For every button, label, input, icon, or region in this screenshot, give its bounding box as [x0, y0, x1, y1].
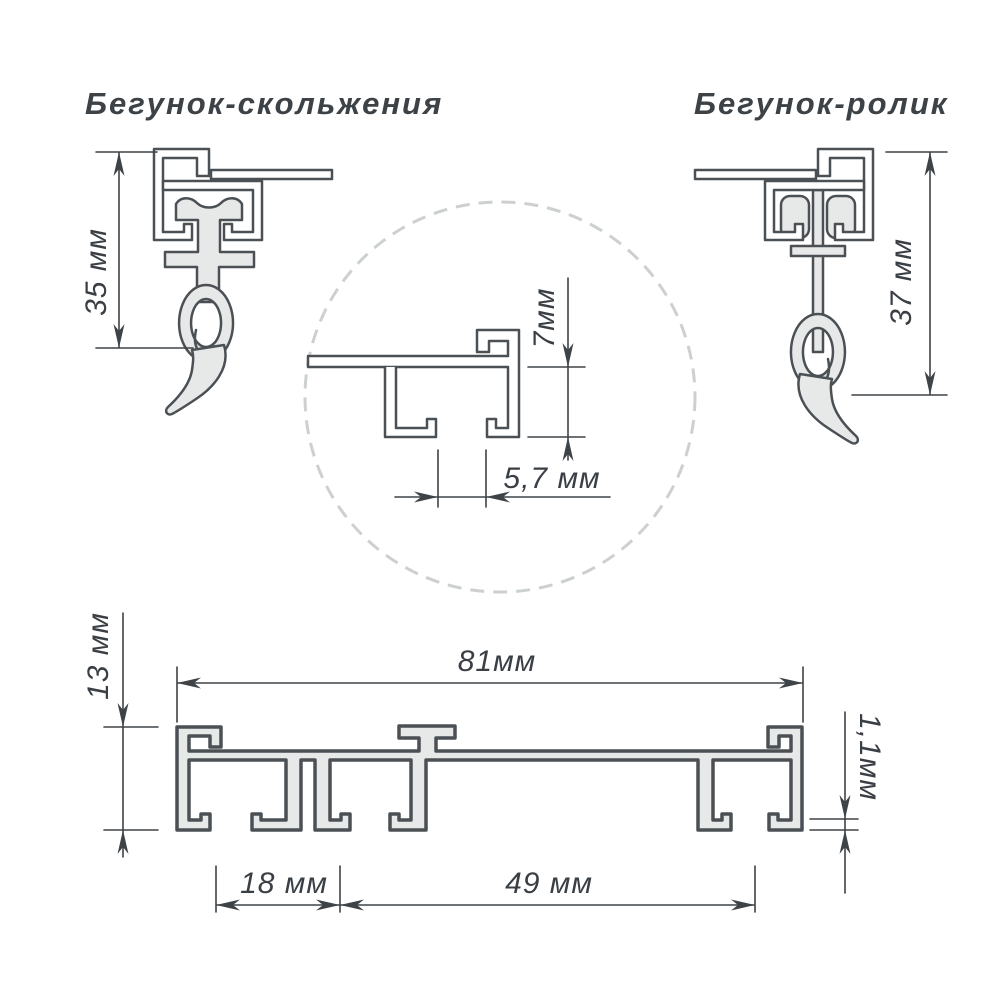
- dimension-18mm-label: 18 мм: [240, 867, 328, 900]
- dimension-1-1mm-lines: [810, 712, 858, 893]
- detail-channel-leg: [385, 367, 436, 437]
- glide-runner-title: Бегунок-скольжения: [85, 86, 443, 121]
- dimension-18mm: 18 мм: [216, 866, 340, 912]
- curtain-rail-diagram: 7мм 5,7 мм Бегунок-скольжения 35 мм: [0, 0, 1000, 1000]
- detail-rail-web: [308, 356, 508, 367]
- dimension-81mm-label: 81мм: [458, 645, 537, 678]
- roller-cross-tab: [791, 246, 845, 256]
- dimension-7mm-label: 7мм: [528, 288, 561, 349]
- dimension-81mm: 81мм: [177, 645, 803, 722]
- dashed-zoom-circle-icon: [305, 202, 695, 592]
- dimension-5-7mm: 5,7 мм: [395, 450, 610, 507]
- profile-cross-section-figure: 81мм 13 мм 1,1мм 18 мм 49 мм: [82, 612, 886, 912]
- dimension-13mm-label: 13 мм: [82, 612, 115, 700]
- dimension-49mm-label: 49 мм: [505, 867, 593, 900]
- diagram-page: 7мм 5,7 мм Бегунок-скольжения 35 мм: [0, 0, 1000, 1000]
- dimension-1-1mm-label: 1,1мм: [853, 713, 886, 801]
- dimension-7mm: 7мм: [528, 278, 585, 461]
- dimension-35mm-label: 35 мм: [80, 228, 113, 316]
- dimension-1-1mm: 1,1мм: [810, 712, 886, 893]
- roller-hook-tail: [798, 374, 857, 443]
- roller-runner-mirrored-group: [695, 149, 873, 443]
- roller-runner-figure: Бегунок-ролик 37 мм: [694, 86, 948, 443]
- dimension-49mm: 49 мм: [340, 866, 755, 912]
- zoom-detail-bubble: 7мм 5,7 мм: [305, 202, 695, 592]
- dimension-37mm-label: 37 мм: [885, 238, 918, 326]
- dimension-13mm: 13 мм: [82, 612, 158, 857]
- roller-runner-title: Бегунок-ролик: [694, 86, 948, 121]
- dimension-5-7mm-label: 5,7 мм: [503, 462, 600, 495]
- glide-rail-web: [211, 170, 332, 179]
- detail-end-flange-hook: [477, 330, 519, 437]
- roller-rail-web: [695, 170, 816, 179]
- glide-hook-tail: [166, 345, 225, 414]
- rail-profile-cross-section: [177, 726, 802, 830]
